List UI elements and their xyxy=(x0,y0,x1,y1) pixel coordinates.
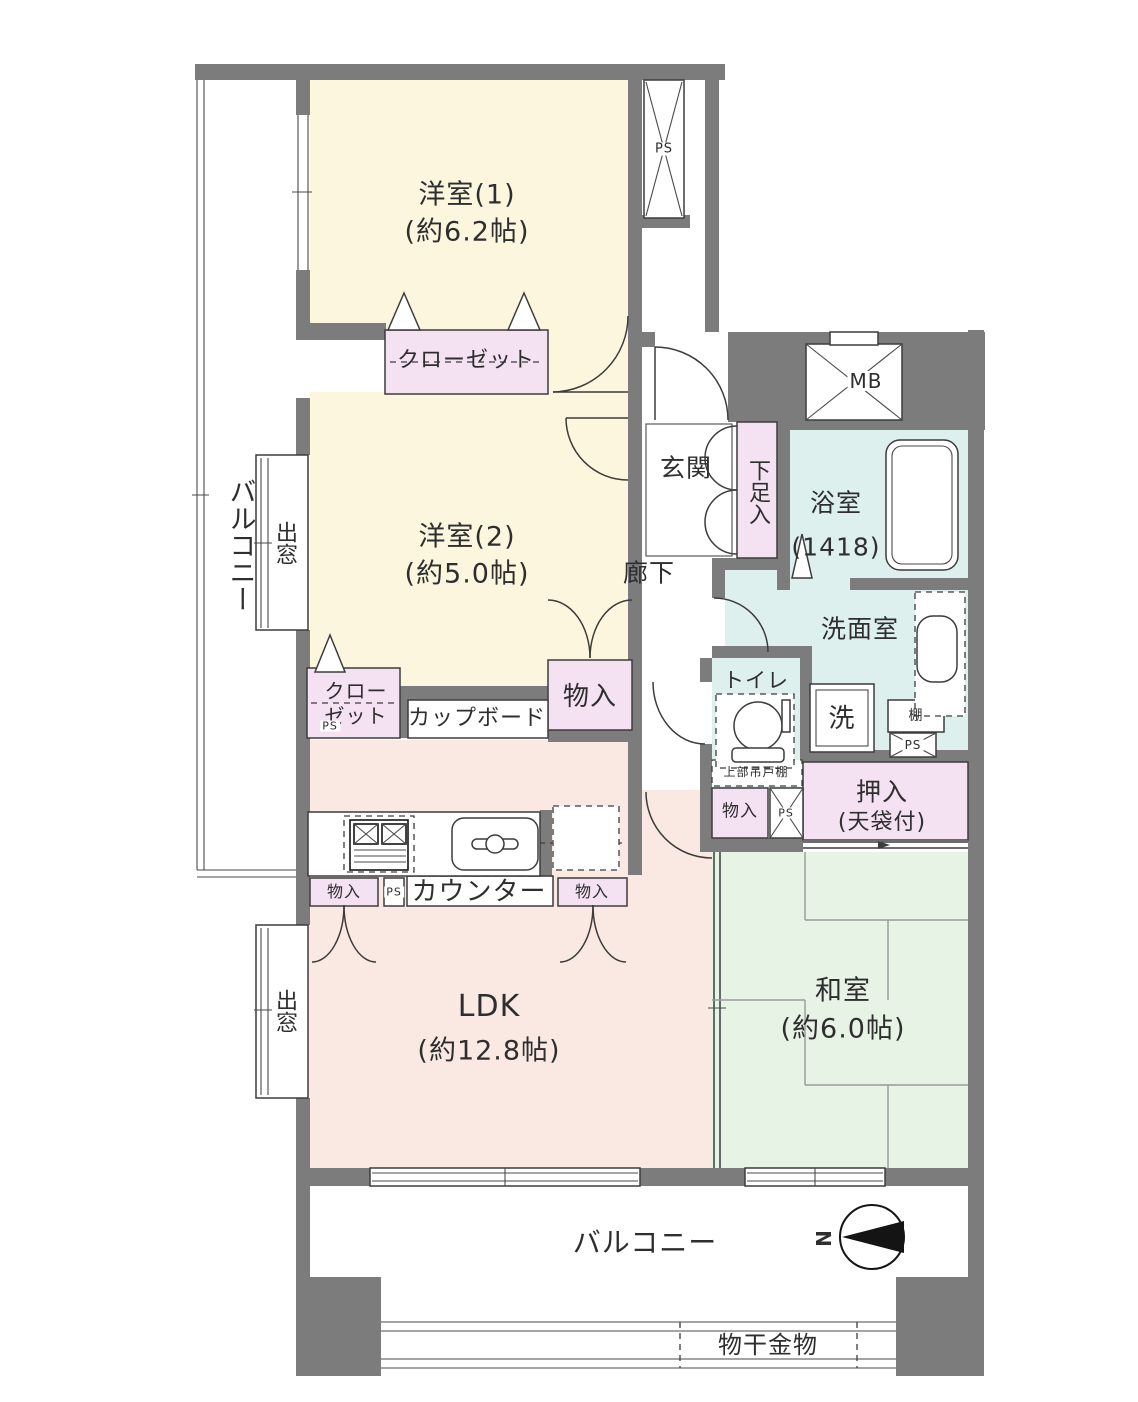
label-ldk-size: (約12.8帖) xyxy=(417,1038,560,1065)
floor-plan: 洋室(1) (約6.2帖) クローゼット PS バルコニー 出窓 洋室(2) (… xyxy=(0,0,1138,1402)
label-bath-size: (1418) xyxy=(791,535,880,560)
toilet-tank xyxy=(732,748,784,762)
label-oshiire-line2: (天袋付) xyxy=(838,812,926,834)
japanese-room-floor xyxy=(712,852,968,1168)
label-ps-top: PS xyxy=(653,143,675,156)
label-laundry: 洗 xyxy=(828,706,855,732)
label-ps-toilet: PS xyxy=(776,808,796,819)
label-entrance: 玄関 xyxy=(660,456,712,481)
bathtub xyxy=(886,440,958,570)
label-bath-name: 浴室 xyxy=(810,491,862,516)
label-ldk-name: LDK xyxy=(458,992,521,1022)
label-drying-fixture: 物干金物 xyxy=(718,1333,818,1357)
label-japanese-size: (約6.0帖) xyxy=(780,1016,905,1043)
label-kitchen-storage-left: 物入 xyxy=(327,884,361,900)
label-balcony-left: バルコニー xyxy=(227,478,254,613)
label-bay-window-lower: 出窓 xyxy=(273,989,295,1033)
label-western1-size: (約6.2帖) xyxy=(404,219,529,246)
entrance-step-outline xyxy=(646,424,732,556)
label-cupboard: カップボード xyxy=(408,708,546,730)
north-compass xyxy=(840,1205,904,1269)
label-western2-name: 洋室(2) xyxy=(418,524,515,551)
label-shoe-box: 下足入 xyxy=(746,459,768,525)
label-bay-window-upper: 出窓 xyxy=(273,521,295,565)
refrigerator-space xyxy=(553,806,619,870)
label-washroom: 洗面室 xyxy=(821,617,899,642)
label-ps-washroom: PS xyxy=(903,739,924,751)
label-balcony-bottom: バルコニー xyxy=(573,1229,717,1257)
entrance-door-arc xyxy=(655,347,728,420)
ldk-floor xyxy=(300,740,642,1168)
label-western1-name: 洋室(1) xyxy=(418,182,515,209)
toilet-door-arc xyxy=(653,682,705,744)
kitchen-fixtures xyxy=(308,806,625,876)
label-mb: MB xyxy=(848,371,885,391)
label-shelf: 棚 xyxy=(909,709,924,723)
sink-faucet xyxy=(486,835,504,853)
western-room1-floor-ext xyxy=(548,330,628,398)
mb-vent xyxy=(830,332,878,345)
label-upper-cabinet: 上部吊戸棚 xyxy=(723,766,788,778)
label-western2-size: (約5.0帖) xyxy=(404,561,529,588)
label-toilet: トイレ xyxy=(723,671,789,692)
label-toilet-side-storage: 物入 xyxy=(722,804,758,821)
toilet-washlet xyxy=(782,700,790,732)
label-ps-kitchen: PS xyxy=(384,887,404,898)
label-japanese-name: 和室 xyxy=(815,978,871,1005)
label-oshiire-line1: 押入 xyxy=(856,780,908,805)
wash-basin xyxy=(917,616,957,682)
label-closet1: クローゼット xyxy=(397,350,535,372)
label-hall-storage: 物入 xyxy=(563,684,617,710)
toilet-bowl xyxy=(734,702,782,750)
label-north: N xyxy=(814,1229,834,1247)
label-kitchen-storage-right: 物入 xyxy=(575,884,609,900)
label-closet2-line1: クロー xyxy=(325,681,388,701)
label-ps-closet2: PS xyxy=(320,721,340,732)
label-hallway: 廊下 xyxy=(623,561,675,586)
label-counter: カウンター xyxy=(411,879,546,905)
